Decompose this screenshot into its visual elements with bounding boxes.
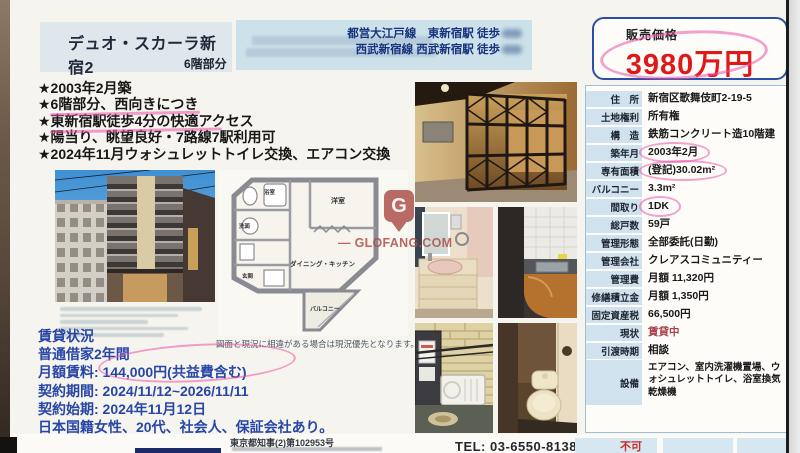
detail-value: (登記)30.02m² (642, 165, 787, 177)
detail-row: バルコニー 3.3m² (586, 180, 787, 198)
detail-row: 間取り 1DK (586, 198, 787, 216)
detail-value: 全部委託(日勤) (642, 237, 787, 249)
kitchen-photo (498, 207, 577, 318)
washbasin-photo (415, 207, 493, 318)
detail-row: 構 造 鉄筋コンクリート造10階建 (586, 126, 787, 144)
room-label-dining-kitchen: ダイニング・キッチン (290, 258, 355, 268)
redaction-smudge (502, 45, 522, 54)
agency-logo-fragment (135, 448, 221, 453)
detail-value: 59戸 (642, 219, 787, 231)
detail-label: 総戸数 (586, 217, 642, 234)
room-label-balcony: バルコニー (310, 304, 340, 313)
room-label-bath: 浴室 (264, 188, 275, 196)
rental-line: 月額賃料: 144,000円(共益費含む) (38, 363, 333, 381)
detail-label: 住 所 (586, 91, 642, 108)
access-line-1: 都営大江戸線 東新宿駅 徒歩 (347, 25, 522, 41)
rental-line: 賃貸状況 (38, 327, 333, 345)
detail-row: 修繕積立金 月額 1,350円 (586, 288, 787, 306)
entrance-lobby-photo (415, 82, 577, 202)
property-title-box: デュオ・スカーラ新宿2 6階部分 (40, 22, 232, 72)
detail-label: 修繕積立金 (586, 289, 642, 306)
rental-status-block: 賃貸状況普通借家2年間月額賃料: 144,000円(共益費含む)契約期間: 20… (38, 327, 333, 436)
room-label-entrance: 玄関 (242, 272, 253, 280)
detail-label: 築年月 (586, 145, 642, 162)
floor-note: 6階部分 (184, 55, 227, 72)
next-table-cell (663, 438, 733, 453)
detail-label: 構 造 (586, 127, 642, 144)
detail-value: 鉄筋コンクリート造10階建 (642, 129, 787, 141)
detail-label: 管理費 (586, 271, 642, 288)
detail-label: バルコニー (586, 181, 642, 198)
detail-row: 管理会社 クレアスコミュニティー (586, 252, 787, 270)
detail-value: 2003年2月 (642, 147, 787, 159)
detail-label: 間取り (586, 199, 642, 216)
detail-value: クレアスコミュニティー (642, 255, 787, 267)
detail-value: 所有権 (642, 111, 787, 123)
next-table-cell (575, 438, 657, 453)
detail-value: 1DK (642, 201, 787, 213)
room-label-washroom: 洗面 (239, 222, 250, 230)
next-table-cell (737, 438, 789, 453)
detail-label: 土地権利 (586, 109, 642, 126)
price-box: 販売価格 3980万円 (592, 17, 788, 80)
toilet-photo (498, 323, 577, 433)
detail-row: 設備 エアコン、室内洗濯機置場、ウォシュレットトイレ、浴室換気乾燥機 (586, 360, 787, 406)
property-details-table: 住 所 新宿区歌舞伎町2-19-5 土地権利 所有権 構 造 鉄筋コンクリート造… (585, 85, 788, 433)
detail-label: 設備 (586, 360, 642, 406)
detail-label: 現状 (586, 325, 642, 342)
detail-label: 固定資産税 (586, 307, 642, 324)
detail-value: 新宿区歌舞伎町2-19-5 (642, 93, 787, 105)
building-photo-graphic (55, 170, 215, 302)
phone-number: TEL: 03-6550-8138 (455, 439, 577, 453)
detail-row: 総戸数 59戸 (586, 216, 787, 234)
detail-label: 管理会社 (586, 253, 642, 270)
rental-line: 普通借家2年間 (38, 345, 333, 363)
detail-row: 専有面積 (登記)30.02m² (586, 162, 787, 180)
detail-row: 住 所 新宿区歌舞伎町2-19-5 (586, 90, 787, 108)
detail-value: 月額 11,320円 (642, 273, 787, 285)
highlight-bullet: ★2024年11月ウォシュレットトイレ交換、エアコン交換 (38, 146, 390, 162)
detail-label: 引渡時期 (586, 343, 642, 360)
detail-value: 3.3m² (642, 183, 787, 195)
detail-value: エアコン、室内洗濯機置場、ウォシュレットトイレ、浴室換気乾燥機 (642, 360, 787, 399)
detail-value: 月額 1,350円 (642, 291, 787, 303)
price-value: 3980万円 (594, 41, 786, 83)
table-edge-left (0, 0, 10, 453)
access-line-2: 西武新宿線 西武新宿駅 徒歩 (356, 41, 522, 57)
footer-band: 東京都知事(2)第102953号 TEL: 03-6550-8138 不可 (9, 434, 786, 453)
highlight-list: ★2003年2月築★6階部分、西向きにつき★東新宿駅徒歩4分の快適アクセス★陽当… (38, 80, 390, 162)
toilet-photo-graphic (498, 323, 577, 433)
detail-row: 固定資産税 66,500円 (586, 306, 787, 324)
rental-line: 契約期間: 2024/11/12~2026/11/11 (38, 382, 333, 400)
license-second-line-blur (232, 447, 382, 451)
detail-label: 専有面積 (586, 163, 642, 180)
detail-row: 管理形態 全部委託(日勤) (586, 234, 787, 252)
detail-value: 66,500円 (642, 309, 787, 321)
detail-label: 管理形態 (586, 235, 642, 252)
entrance-photo-graphic (415, 82, 577, 202)
highlight-bullet: ★6階部分、西向きにつき (38, 96, 390, 112)
balcony-aircon-photo (415, 323, 493, 433)
kitchen-photo-graphic (498, 207, 577, 318)
redaction-smudge (502, 29, 522, 38)
dark-corner (0, 437, 17, 453)
detail-row: 管理費 月額 11,320円 (586, 270, 787, 288)
detail-value: 賃貸中 (642, 327, 787, 339)
detail-row: 現状 賃貸中 (586, 324, 787, 342)
listing-flyer-photo: デュオ・スカーラ新宿2 6階部分 都営大江戸線 東新宿駅 徒歩 西武新宿線 西武… (0, 0, 800, 453)
partial-red-note: 不可 (620, 438, 642, 453)
station-access-box: 都営大江戸線 東新宿駅 徒歩 西武新宿線 西武新宿駅 徒歩 (236, 20, 532, 70)
detail-row: 土地権利 所有権 (586, 108, 787, 126)
highlight-bullet: ★2003年2月築 (38, 80, 390, 96)
room-label-western-room: 洋室 (331, 196, 345, 206)
highlight-bullet: ★陽当り、眺望良好・7路線7駅利用可 (38, 129, 390, 145)
building-exterior-photo (55, 170, 215, 302)
floor-plan-image: 洋室 ダイニング・キッチン バルコニー 浴室 洗面 玄関 (218, 170, 408, 336)
detail-value: 相談 (642, 345, 787, 357)
highlight-bullet: ★東新宿駅徒歩4分の快適アクセス (38, 113, 390, 129)
rental-line: 契約始期: 2024年11月12日 (38, 400, 333, 418)
washbasin-photo-graphic (415, 207, 493, 318)
detail-row: 引渡時期 相談 (586, 342, 787, 360)
table-edge-right (789, 0, 800, 453)
balcony-photo-graphic (415, 323, 493, 433)
